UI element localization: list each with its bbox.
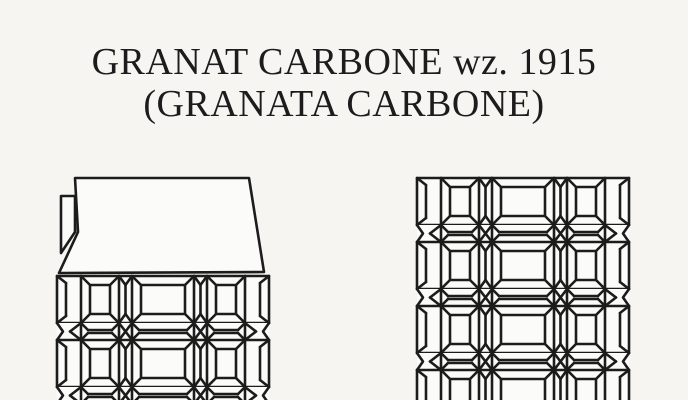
fuze-cap <box>59 178 264 273</box>
grenade-technical-drawing <box>0 0 688 400</box>
grenade-body-figure <box>417 178 629 400</box>
fragmentation-body <box>57 276 269 400</box>
scanned-document-page: GRANAT CARBONE wz. 1915 (GRANATA CARBONE… <box>0 0 688 400</box>
fragmentation-body <box>417 178 629 400</box>
grenade-with-cap-figure <box>57 178 269 400</box>
